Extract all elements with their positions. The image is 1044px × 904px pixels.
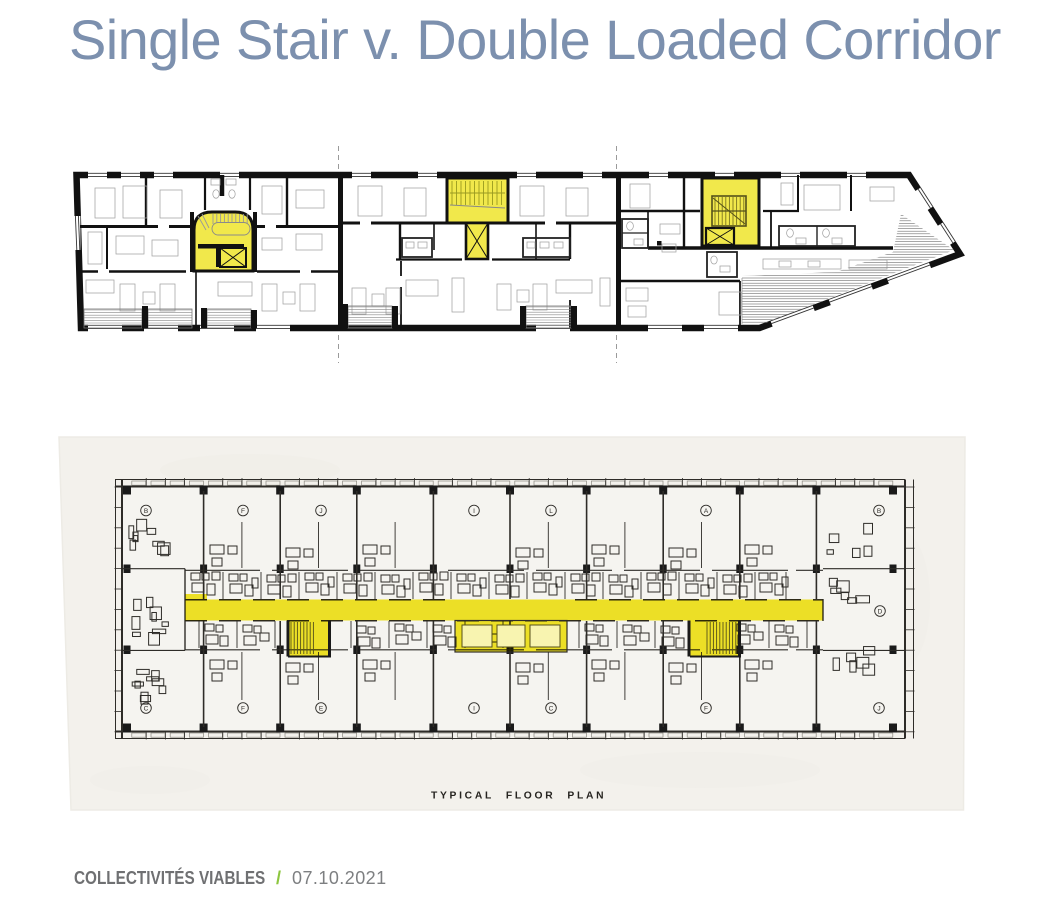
svg-text:L: L	[549, 508, 553, 515]
svg-text:D: D	[878, 608, 883, 615]
svg-text:J: J	[319, 508, 322, 515]
svg-text:I: I	[473, 705, 475, 712]
svg-text:F: F	[241, 705, 245, 712]
svg-text:F: F	[704, 705, 708, 712]
svg-text:B: B	[877, 508, 881, 515]
svg-text:E: E	[319, 705, 324, 712]
svg-text:F: F	[241, 508, 245, 515]
svg-text:C: C	[549, 705, 554, 712]
svg-text:A: A	[704, 508, 709, 515]
svg-text:C: C	[144, 705, 149, 712]
svg-text:J: J	[877, 705, 880, 712]
svg-text:I: I	[473, 508, 475, 515]
svg-text:TYPICAL FLOOR PLAN: TYPICAL FLOOR PLAN	[431, 791, 606, 802]
svg-text:B: B	[144, 508, 148, 515]
